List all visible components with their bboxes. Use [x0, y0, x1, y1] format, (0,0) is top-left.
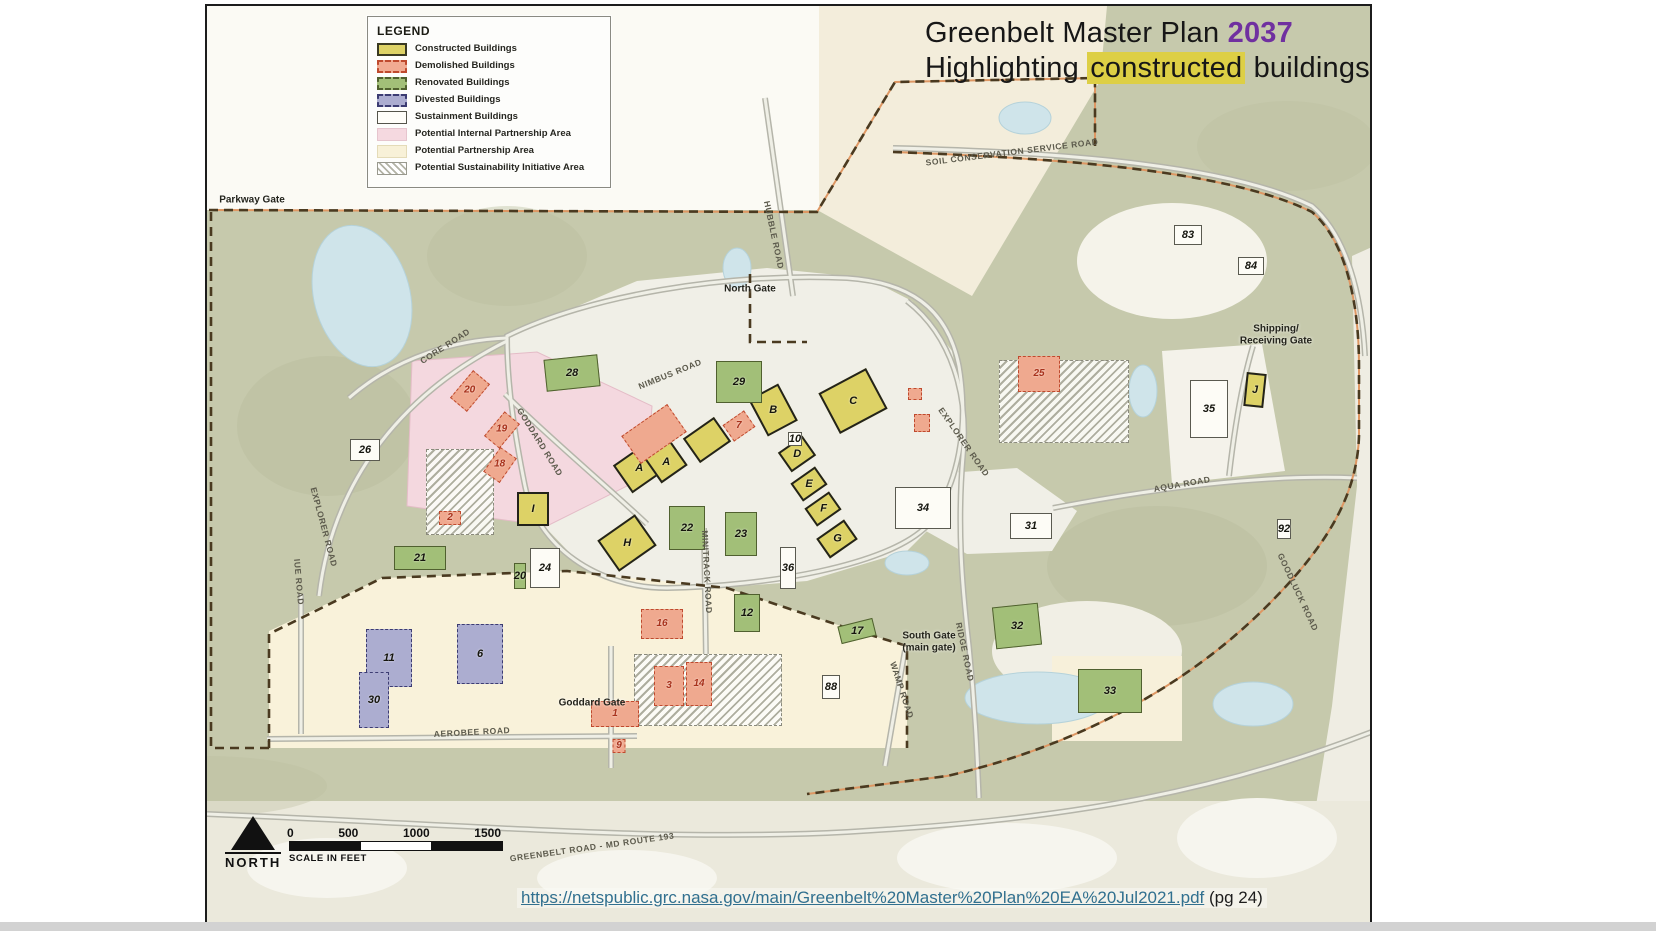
building-label: 11	[383, 653, 394, 664]
building-label: 6	[477, 649, 483, 660]
building-10-sustainment: 10	[788, 432, 802, 446]
building-label: E	[805, 479, 812, 490]
building-label: I	[531, 504, 534, 515]
north-arrow: NORTH	[225, 816, 281, 870]
building-label: A	[635, 463, 643, 474]
building-label: 2	[447, 513, 453, 523]
building-label: D	[793, 449, 801, 460]
building-label: 10	[789, 434, 801, 445]
building-label: B	[769, 405, 777, 416]
scale-bar: 0 500 1000 1500 SCALE IN FEET	[289, 826, 503, 864]
building-6-divested: 6	[457, 624, 503, 684]
building-label: 22	[681, 523, 693, 534]
legend-swatch	[377, 162, 407, 175]
north-label: NORTH	[225, 852, 281, 870]
building-33-renovated: 33	[1078, 669, 1142, 713]
building-34-sustainment: 34	[895, 487, 951, 529]
building-label: G	[833, 534, 842, 545]
building-26-sustainment: 26	[350, 439, 380, 461]
legend-swatch	[377, 94, 407, 107]
legend-swatch	[377, 111, 407, 124]
building-21-renovated: 21	[394, 546, 446, 570]
building-j-constructed: J	[1243, 372, 1266, 408]
title-year: 2037	[1228, 17, 1293, 49]
building-label: 12	[741, 608, 753, 619]
building-label: C	[849, 396, 857, 407]
legend-item-divested-buildings: Divested Buildings	[377, 94, 601, 107]
building-label: 84	[1245, 261, 1257, 272]
legend-item-constructed-buildings: Constructed Buildings	[377, 43, 601, 56]
building-label: 19	[496, 425, 507, 435]
legend-item-demolished-buildings: Demolished Buildings	[377, 60, 601, 73]
source-page-note: (pg 24)	[1204, 888, 1263, 907]
building-label: 20	[464, 386, 475, 396]
legend-swatch	[377, 145, 407, 158]
building-16-demolished: 16	[641, 609, 683, 639]
building-unlabeled-demolished	[914, 414, 930, 432]
legend-item-label: Sustainment Buildings	[415, 112, 518, 122]
legend-list: Constructed BuildingsDemolished Building…	[377, 43, 601, 175]
gate-label-parkway-gate: Parkway Gate	[219, 194, 285, 206]
building-30-divested: 30	[359, 672, 389, 728]
legend-swatch	[377, 60, 407, 73]
building-23-renovated: 23	[725, 512, 757, 556]
legend-item-sustainment-buildings: Sustainment Buildings	[377, 111, 601, 124]
building-label: 26	[359, 445, 371, 456]
gate-label-shipping-receiving-gate: Shipping/ Receiving Gate	[1240, 324, 1312, 347]
building-32-renovated: 32	[992, 603, 1042, 650]
building-9-demolished: 9	[613, 739, 626, 753]
building-label: 92	[1278, 524, 1290, 535]
building-88-sustainment: 88	[822, 675, 840, 699]
legend-item-label: Potential Sustainability Initiative Area	[415, 163, 584, 173]
scale-tick: 1500	[474, 826, 501, 840]
legend-item-label: Demolished Buildings	[415, 61, 515, 71]
building-label: 24	[539, 563, 551, 574]
building-label: 31	[1025, 521, 1037, 532]
building-label: H	[623, 538, 631, 549]
building-label: F	[820, 504, 827, 515]
page-title: Greenbelt Master Plan 2037 Highlighting …	[925, 16, 1370, 87]
building-label: 9	[616, 741, 622, 751]
legend-item-label: Potential Partnership Area	[415, 146, 534, 156]
building-label: 36	[782, 563, 794, 574]
legend-item-renovated-buildings: Renovated Buildings	[377, 77, 601, 90]
building-unlabeled-demolished	[908, 388, 922, 400]
legend-item-label: Potential Internal Partnership Area	[415, 129, 571, 139]
gate-label-north-gate: North Gate	[724, 283, 776, 295]
title-line-1: Greenbelt Master Plan 2037	[925, 16, 1370, 51]
building-label: 35	[1203, 404, 1215, 415]
legend: LEGEND Constructed BuildingsDemolished B…	[367, 16, 611, 188]
legend-item-potential-internal-partnership-area: Potential Internal Partnership Area	[377, 128, 601, 141]
building-92-sustainment: 92	[1277, 519, 1291, 539]
legend-title: LEGEND	[377, 24, 601, 38]
building-31-sustainment: 31	[1010, 513, 1052, 539]
building-24-sustainment: 24	[530, 548, 560, 588]
subtitle-highlight: constructed	[1087, 52, 1245, 84]
gate-label-goddard-gate: Goddard Gate	[559, 697, 626, 709]
building-label: 83	[1182, 230, 1194, 241]
legend-swatch	[377, 77, 407, 90]
building-label: 32	[1011, 621, 1023, 632]
legend-swatch	[377, 128, 407, 141]
scale-segment	[290, 842, 361, 850]
north-arrow-icon	[231, 816, 275, 850]
scale-caption: SCALE IN FEET	[289, 853, 503, 864]
building-label: 23	[735, 529, 747, 540]
building-label: 33	[1104, 686, 1116, 697]
building-label: 25	[1033, 369, 1044, 379]
building-29-renovated: 29	[716, 361, 762, 403]
building-label: 29	[733, 377, 745, 388]
legend-item-potential-partnership-area: Potential Partnership Area	[377, 145, 601, 158]
building-label: 30	[368, 695, 380, 706]
legend-swatch	[377, 43, 407, 56]
building-3-demolished: 3	[654, 666, 684, 706]
scale-ticks: 0 500 1000 1500	[289, 826, 503, 840]
bottom-strip	[0, 922, 1656, 931]
source-line: https://netspublic.grc.nasa.gov/main/Gre…	[517, 888, 1267, 908]
building-20-renovated: 20	[514, 563, 526, 589]
subtitle-suffix: buildings	[1245, 52, 1370, 84]
building-label: 34	[917, 503, 929, 514]
scale-tick: 1000	[403, 826, 430, 840]
scale-tick: 500	[338, 826, 358, 840]
building-28-renovated: 28	[543, 354, 600, 391]
legend-item-label: Divested Buildings	[415, 95, 501, 105]
building-label: 18	[494, 460, 505, 470]
building-14-demolished: 14	[686, 662, 712, 706]
building-84-sustainment: 84	[1238, 257, 1264, 275]
building-label: 21	[414, 553, 426, 564]
building-25-demolished: 25	[1018, 356, 1060, 392]
map-image: AABCDEFGHIJ28292122231217323320262434313…	[205, 4, 1372, 922]
building-label: 16	[656, 619, 667, 629]
title-text: Greenbelt Master Plan	[925, 17, 1228, 49]
scale-segment	[431, 842, 502, 850]
source-link[interactable]: https://netspublic.grc.nasa.gov/main/Gre…	[521, 888, 1204, 907]
legend-item-label: Renovated Buildings	[415, 78, 509, 88]
building-label: J	[1252, 385, 1258, 396]
building-12-renovated: 12	[734, 594, 760, 632]
subtitle-prefix: Highlighting	[925, 52, 1087, 84]
title-line-2: Highlighting constructed buildings	[925, 51, 1370, 86]
building-label: 28	[566, 368, 578, 379]
building-label: 1	[612, 709, 618, 719]
gate-label-south-gate-main-gate-: South Gate (main gate)	[902, 631, 955, 654]
building-label: 17	[851, 626, 863, 637]
building-35-sustainment: 35	[1190, 380, 1228, 438]
legend-item-label: Constructed Buildings	[415, 44, 517, 54]
building-label: 20	[514, 571, 526, 582]
scale-tick: 0	[287, 826, 294, 840]
building-label: 88	[825, 682, 837, 693]
building-label: 14	[693, 679, 704, 689]
scale-segment	[361, 842, 432, 850]
building-label: 7	[736, 421, 742, 431]
building-label: A	[662, 457, 670, 468]
building-i-constructed: I	[517, 492, 549, 526]
scale-bar-segments	[289, 841, 503, 851]
building-2-demolished: 2	[439, 511, 461, 525]
legend-item-potential-sustainability-initiative-area: Potential Sustainability Initiative Area	[377, 162, 601, 175]
building-36-sustainment: 36	[780, 547, 796, 589]
building-label: 3	[666, 681, 672, 691]
building-83-sustainment: 83	[1174, 225, 1202, 245]
